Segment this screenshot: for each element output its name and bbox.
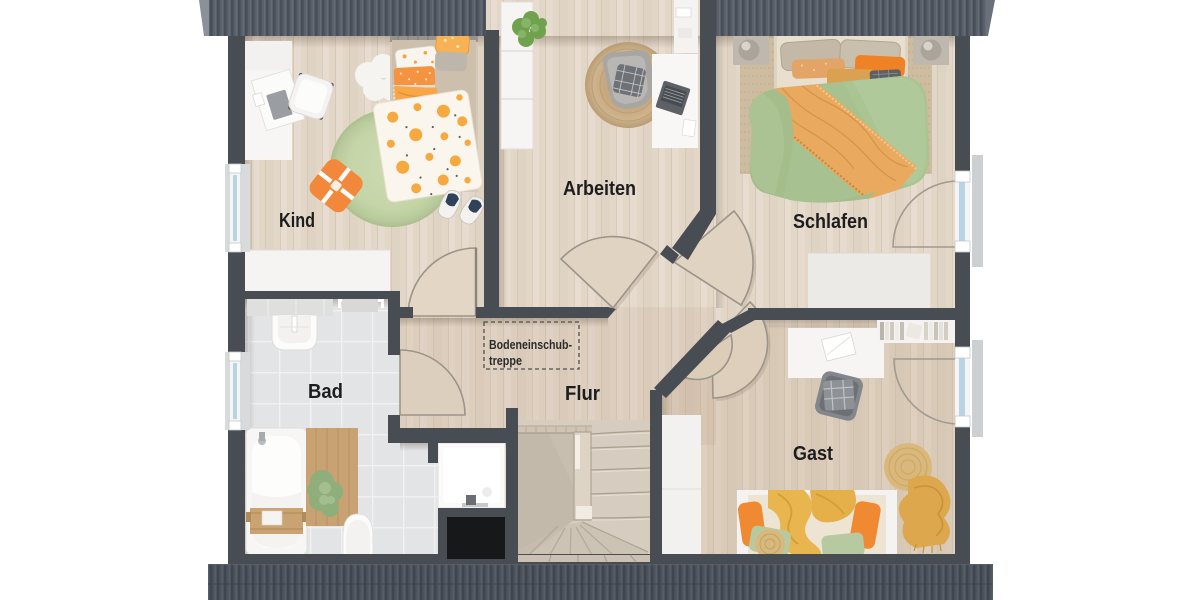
svg-text:Schlafen: Schlafen xyxy=(793,211,868,233)
svg-text:Bodeneinschub-: Bodeneinschub- xyxy=(489,338,572,352)
svg-text:Flur: Flur xyxy=(565,383,600,405)
svg-text:Gast: Gast xyxy=(793,443,833,465)
svg-text:Bad: Bad xyxy=(308,381,343,403)
svg-text:treppe: treppe xyxy=(489,354,522,368)
svg-text:Kind: Kind xyxy=(279,210,315,232)
svg-text:Arbeiten: Arbeiten xyxy=(563,178,636,200)
